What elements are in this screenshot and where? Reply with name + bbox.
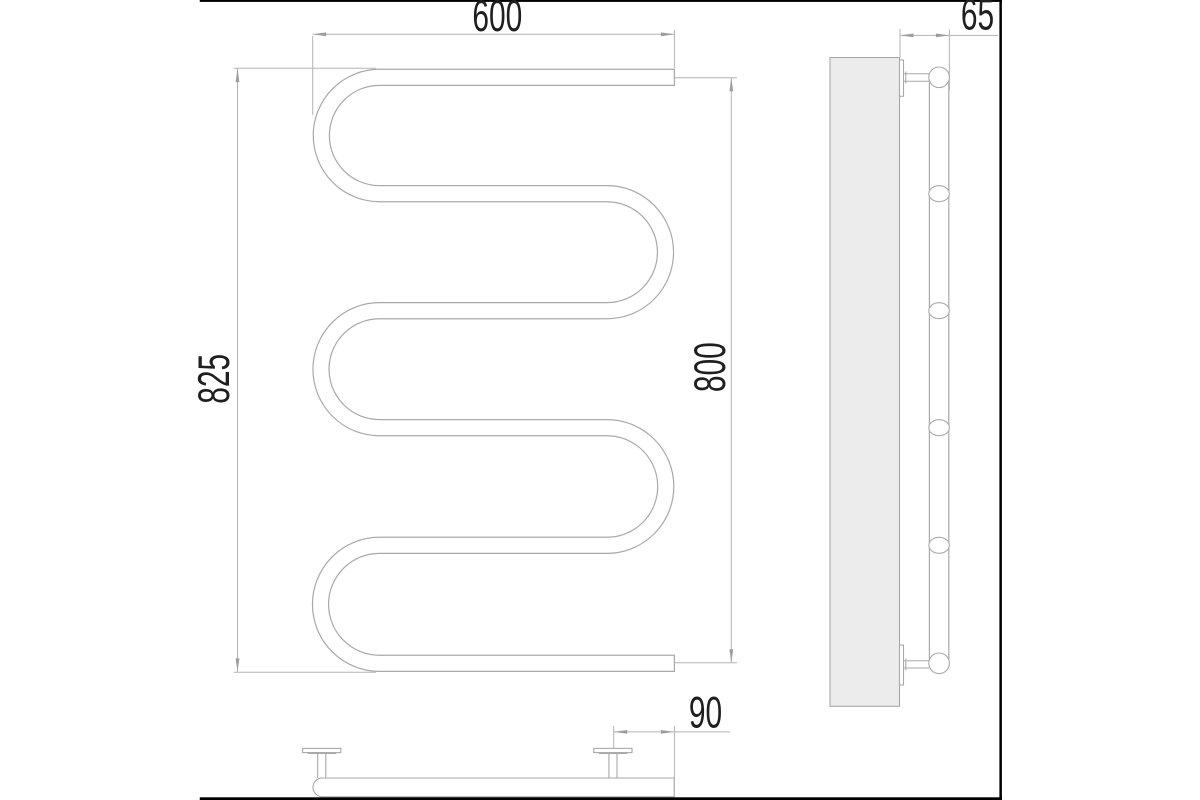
svg-text:65: 65 (961, 0, 994, 40)
svg-text:800: 800 (686, 342, 735, 392)
svg-text:90: 90 (689, 689, 722, 738)
svg-text:825: 825 (190, 354, 239, 404)
svg-text:600: 600 (472, 0, 522, 42)
